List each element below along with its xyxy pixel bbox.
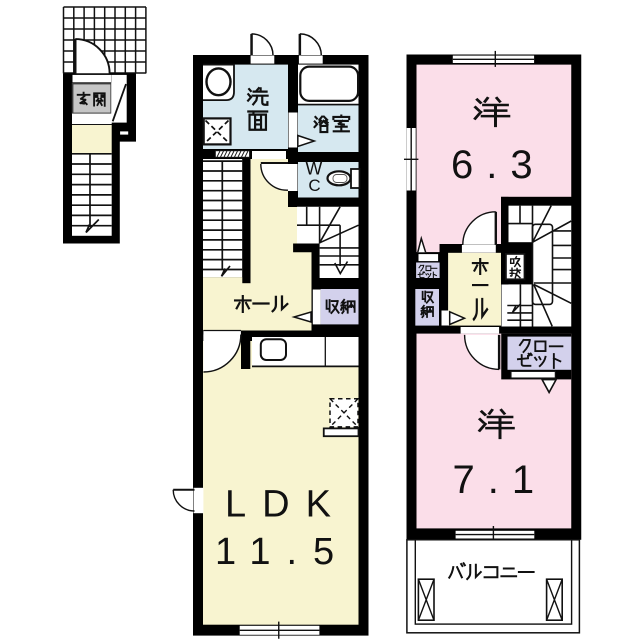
svg-text:C: C [308,176,320,195]
svg-text:LDK: LDK [225,484,347,526]
svg-text:11.5: 11.5 [215,531,350,573]
svg-text:7.1: 7.1 [453,458,548,502]
svg-text:6.3: 6.3 [451,143,546,187]
